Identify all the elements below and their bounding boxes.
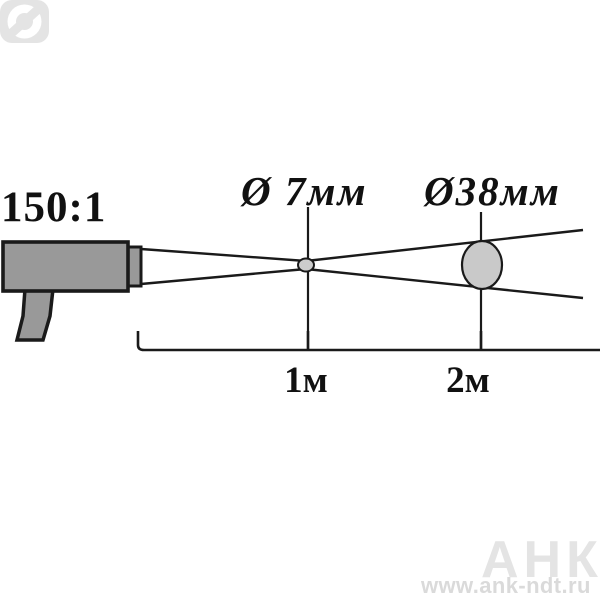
spot-1m-ellipse — [298, 259, 314, 272]
beam-line-top-diverging — [306, 230, 583, 261]
spot-diameter-label-1m: Ø 7мм — [241, 171, 368, 212]
pyrometer-handle — [17, 289, 53, 340]
distance-label-2m: 2м — [438, 362, 498, 399]
diagram-shapes — [0, 0, 600, 600]
optical-ratio-label: 150:1 — [1, 186, 106, 229]
pyrometer-body — [3, 242, 128, 291]
spot-2m-ellipse — [462, 241, 502, 289]
distance-scale-line — [138, 331, 600, 350]
distance-label-1m: 1м — [276, 362, 336, 399]
beam-line-top-converging — [141, 249, 306, 261]
spot-diameter-label-2m: Ø38мм — [424, 171, 561, 212]
beam-line-bottom-converging — [141, 269, 306, 284]
optical-resolution-diagram: 150:1 Ø 7мм Ø38мм 1м 2м АНК www.ank-ndt.… — [0, 0, 600, 600]
beam-line-bottom-diverging — [306, 269, 583, 298]
